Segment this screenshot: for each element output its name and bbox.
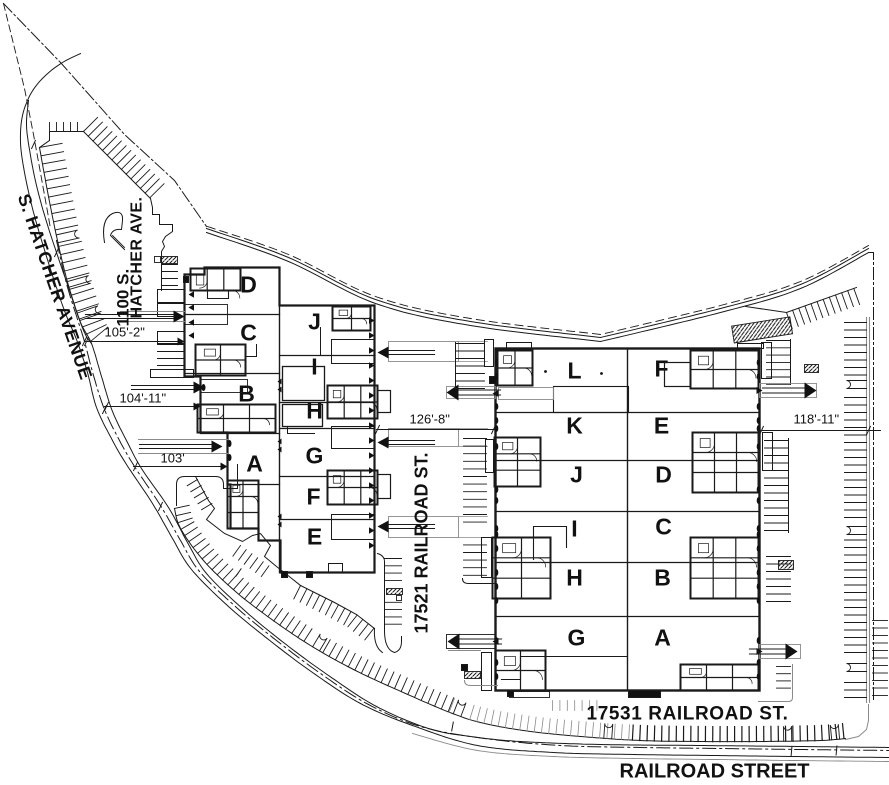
svg-text:104'-11": 104'-11"	[120, 391, 167, 406]
svg-text:J: J	[308, 309, 321, 335]
svg-text:G: G	[568, 625, 586, 651]
svg-text:126'-8": 126'-8"	[410, 412, 451, 427]
svg-text:E: E	[307, 524, 322, 550]
svg-text:17521 RAILROAD ST.: 17521 RAILROAD ST.	[412, 452, 432, 633]
svg-text:I: I	[571, 516, 577, 542]
svg-text:E: E	[654, 413, 669, 439]
svg-text:K: K	[566, 413, 583, 439]
svg-text:H: H	[306, 398, 323, 424]
svg-text:D: D	[240, 272, 257, 298]
svg-text:F: F	[654, 356, 668, 382]
svg-text:L: L	[567, 358, 581, 384]
svg-text:A: A	[246, 451, 263, 477]
svg-text:HATCHER AVE.: HATCHER AVE.	[129, 197, 146, 319]
svg-text:G: G	[306, 443, 324, 469]
svg-text:B: B	[654, 565, 671, 591]
svg-text:C: C	[655, 514, 672, 540]
svg-text:103': 103'	[161, 451, 185, 466]
svg-text:118'-11": 118'-11"	[794, 412, 840, 427]
svg-text:D: D	[655, 462, 672, 488]
svg-text:F: F	[306, 484, 320, 510]
svg-text:J: J	[570, 462, 583, 488]
svg-text:17531 RAILROAD ST.: 17531 RAILROAD ST.	[587, 704, 789, 725]
svg-text:H: H	[566, 565, 583, 591]
svg-text:C: C	[240, 320, 257, 346]
svg-text:A: A	[654, 625, 671, 651]
svg-text:B: B	[238, 381, 255, 407]
svg-text:RAILROAD STREET: RAILROAD STREET	[620, 761, 810, 783]
